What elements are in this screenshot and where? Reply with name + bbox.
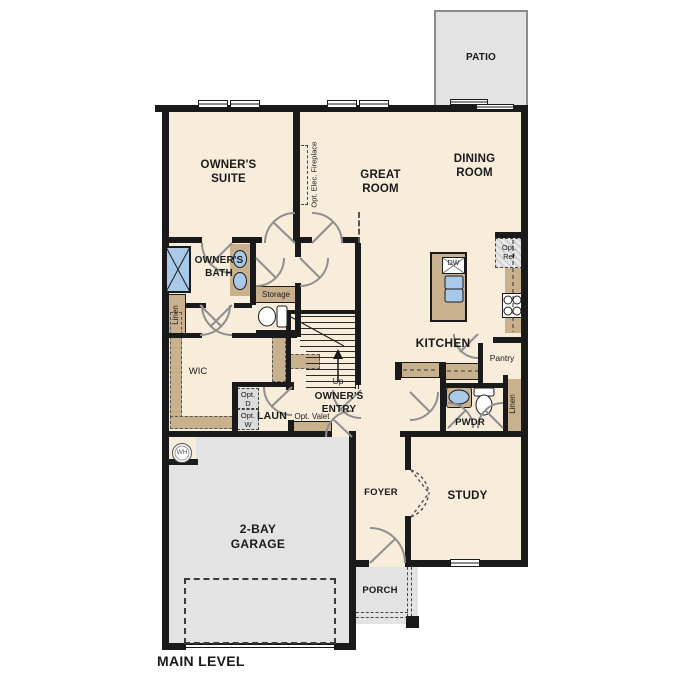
opt-valet-label: Opt. Valet: [290, 412, 334, 422]
owners-bath-label: OWNER'S BATH: [188, 255, 250, 280]
main-level-title: MAIN LEVEL: [157, 653, 297, 671]
opt-washer-label: Opt. W: [238, 411, 258, 430]
storage-label: Storage: [254, 290, 298, 300]
stairs-up-label: Up: [328, 376, 348, 387]
stair-break-line: [291, 317, 344, 346]
island-sink: [445, 276, 463, 302]
study-french-doors: [411, 470, 429, 517]
opt-ref-label: Opt. Ref: [496, 243, 522, 262]
linen-right-label: Linen: [508, 384, 518, 424]
linen-left-label: Linen: [171, 295, 181, 335]
toilet: [259, 306, 288, 327]
powder-sink: [449, 390, 469, 404]
water-heater-label: WH: [172, 449, 192, 457]
fixtures-and-doors-overlay: [0, 0, 687, 687]
garage-label: 2-BAY GARAGE: [223, 522, 293, 552]
powder-label: PWDR: [450, 417, 490, 429]
shower: [166, 247, 190, 292]
opt-fireplace-label: Opt. Elec. Fireplace: [309, 135, 318, 215]
pantry-label: Pantry: [482, 353, 522, 364]
porch-label: PORCH: [356, 585, 404, 597]
opt-dryer-label: Opt. D: [238, 390, 258, 409]
dishwasher-label: DW: [443, 260, 464, 269]
owners-suite-label: OWNER'S SUITE: [186, 158, 271, 187]
kitchen-label: KITCHEN: [408, 336, 478, 351]
wic-label: WIC: [178, 366, 218, 378]
foyer-label: FOYER: [360, 487, 402, 499]
dining-room-label: DINING ROOM: [442, 152, 507, 181]
great-room-label: GREAT ROOM: [348, 168, 413, 197]
laundry-label: LAUN: [252, 410, 292, 423]
floor-plan: PATIO OWNER'S SUITE GREAT ROOM DINING RO…: [0, 0, 687, 687]
patio-label: PATIO: [434, 52, 528, 65]
study-label: STUDY: [440, 489, 495, 503]
